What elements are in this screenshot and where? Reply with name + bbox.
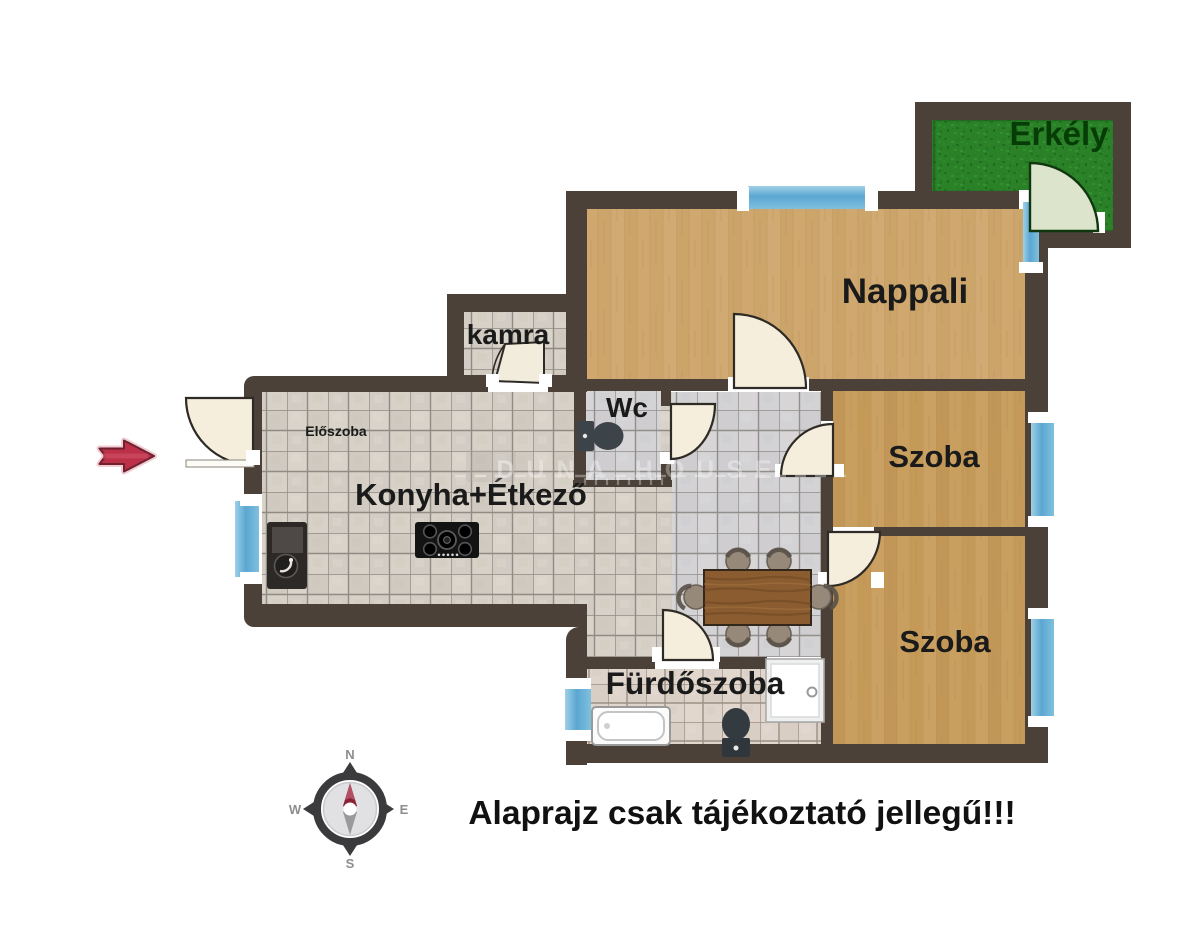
- svg-text:S: S: [346, 856, 355, 871]
- svg-text:N: N: [345, 747, 354, 762]
- svg-text:Előszoba: Előszoba: [305, 423, 367, 439]
- svg-text:W: W: [289, 802, 302, 817]
- svg-text:kamra: kamra: [467, 319, 550, 350]
- svg-text:Szoba: Szoba: [899, 624, 991, 659]
- svg-text:Szoba: Szoba: [888, 439, 980, 474]
- svg-text:Wc: Wc: [606, 392, 648, 423]
- svg-text:Nappali: Nappali: [842, 272, 968, 311]
- svg-text:Erkély: Erkély: [1009, 115, 1109, 152]
- svg-text:Fürdőszoba: Fürdőszoba: [606, 665, 785, 701]
- svg-text:E: E: [400, 802, 409, 817]
- svg-text:Alaprajz csak tájékoztató jell: Alaprajz csak tájékoztató jellegű!!!: [468, 795, 1015, 832]
